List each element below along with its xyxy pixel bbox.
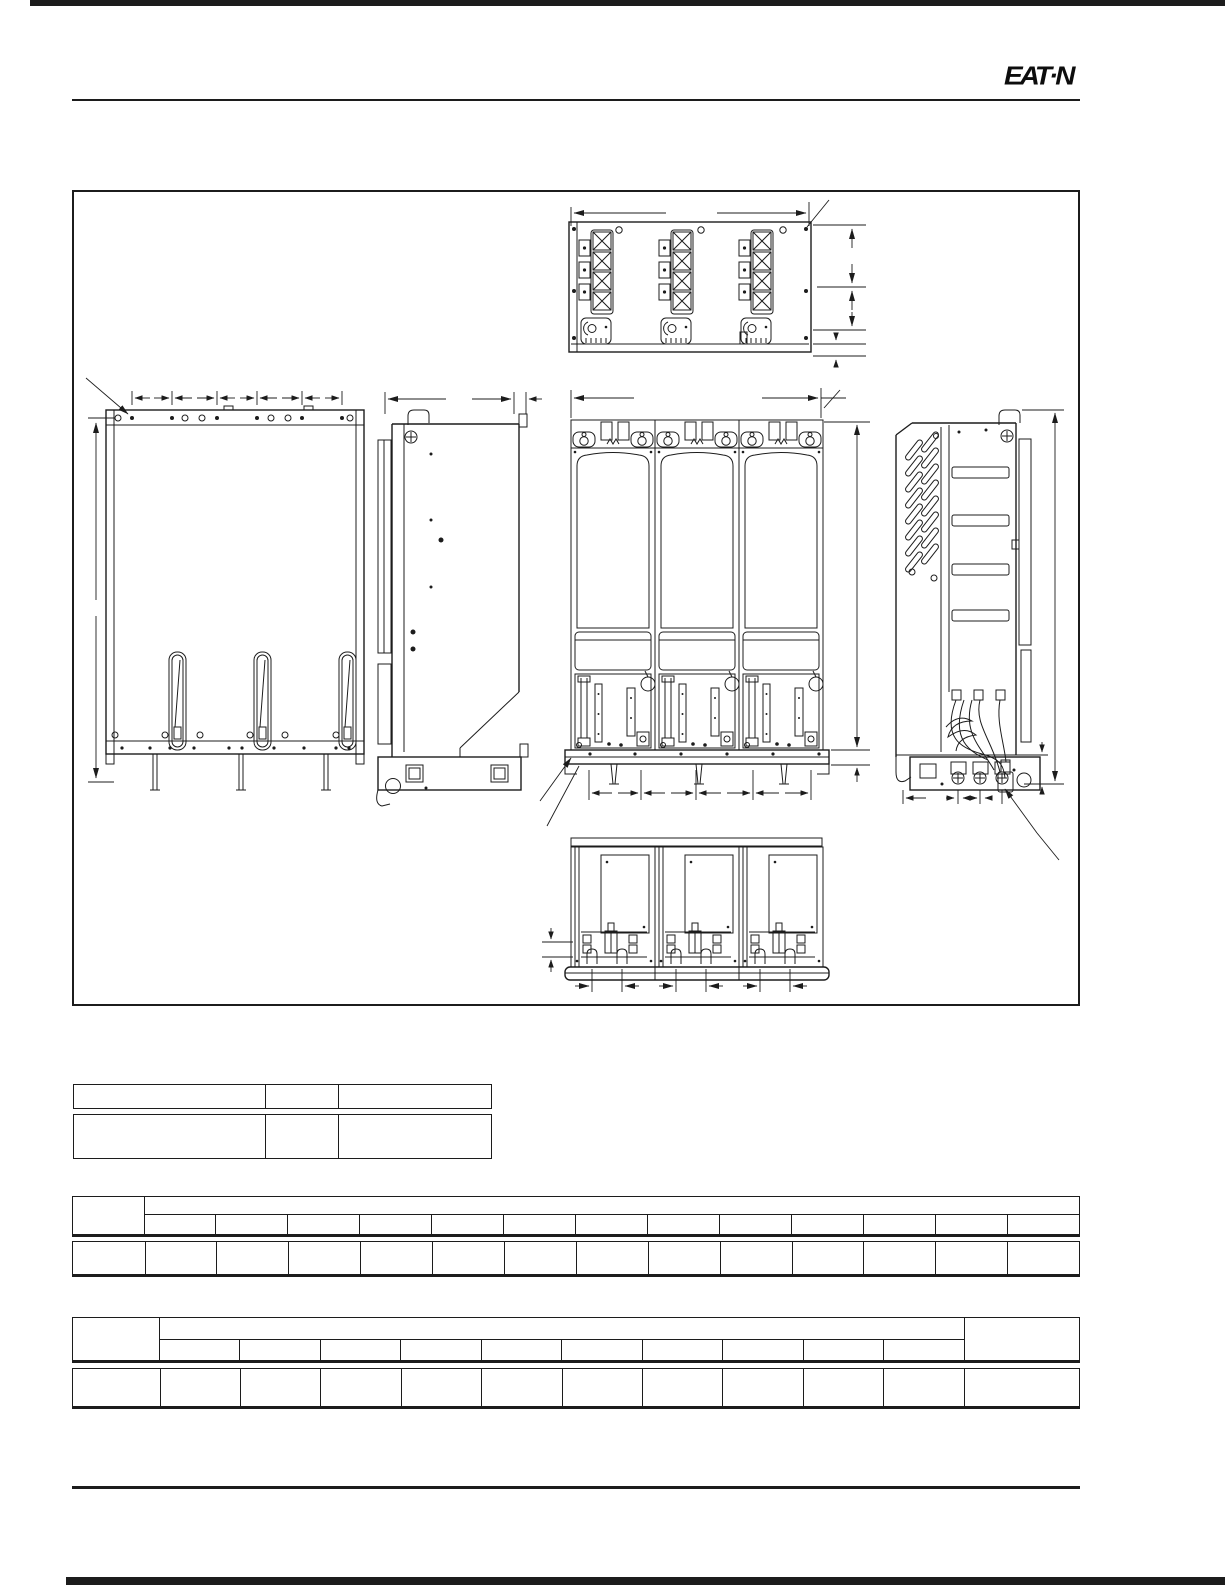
panel-legs — [150, 754, 331, 790]
table-cell — [720, 1242, 792, 1274]
terminal-base — [896, 755, 1040, 790]
width-dimension — [571, 388, 846, 418]
module-legs — [609, 764, 789, 784]
table-corner-cell — [73, 1318, 160, 1360]
table-cell — [935, 1215, 1007, 1234]
height-dimension — [88, 418, 114, 782]
table-cell — [481, 1369, 561, 1406]
summary-table-row-2 — [73, 1114, 492, 1159]
table-last-col-header-cell — [964, 1318, 1080, 1360]
side-slots — [952, 467, 1009, 621]
top-view-dimensions — [571, 200, 866, 367]
leader-line — [540, 758, 571, 801]
table-cell — [803, 1340, 884, 1360]
table-cell — [359, 1215, 431, 1234]
height-dimension — [1018, 410, 1064, 794]
height-dimension — [824, 422, 870, 782]
table-cell — [1007, 1215, 1079, 1234]
table-group-header-cell — [160, 1318, 964, 1340]
table-cell — [719, 1215, 791, 1234]
summary-table-row-1 — [73, 1084, 492, 1109]
wide-table-1-body-row — [73, 1242, 1079, 1274]
mounting-bracket-strip — [571, 420, 823, 448]
mounting-holes — [115, 415, 353, 421]
table-cell — [863, 1242, 935, 1274]
table-cell — [240, 1369, 320, 1406]
table-cell — [722, 1369, 802, 1406]
dimension-drawing-panel — [72, 190, 1080, 1006]
table-cell — [338, 1085, 491, 1108]
top-view-terminal-blocks — [579, 230, 773, 344]
table-cell — [239, 1340, 320, 1360]
table-cell — [265, 1115, 338, 1158]
wide-table-1-body — [72, 1241, 1080, 1277]
dimension-drawing — [74, 192, 1078, 1004]
table-cell — [1007, 1242, 1079, 1274]
table-cell — [648, 1242, 720, 1274]
wide-table-2-body-row — [73, 1369, 1079, 1406]
table-cell — [722, 1340, 803, 1360]
table-cell — [215, 1215, 287, 1234]
table-cell — [160, 1369, 240, 1406]
table-cell — [575, 1215, 647, 1234]
louver-vents — [904, 431, 939, 581]
table-cell — [791, 1215, 863, 1234]
wide-table-2-header — [72, 1317, 1080, 1363]
table-corner-cell — [73, 1197, 145, 1234]
hanging-hook — [408, 410, 429, 425]
table-cell — [288, 1242, 360, 1274]
table-cell — [792, 1242, 864, 1274]
document-page: { "page": { "background_color": "#ffffff… — [0, 0, 1225, 1585]
wide-table-2-body — [72, 1368, 1080, 1409]
terminal-pitch-dimensions — [903, 789, 1059, 860]
table-cell — [561, 1340, 642, 1360]
table-cell — [160, 1340, 240, 1360]
right-side-view — [896, 410, 1064, 860]
left-side-view — [377, 392, 542, 806]
table-cell — [320, 1340, 401, 1360]
header-rule — [72, 99, 1080, 101]
table-cell — [964, 1369, 1080, 1406]
table-cell — [338, 1115, 491, 1158]
table-cell — [481, 1340, 562, 1360]
table-cell — [642, 1369, 722, 1406]
base-assembly — [377, 757, 521, 806]
table-cell — [803, 1369, 883, 1406]
table-cell — [73, 1369, 160, 1406]
table-cell — [400, 1340, 481, 1360]
table-cell — [503, 1215, 575, 1234]
table-cell — [431, 1215, 503, 1234]
table-cell — [265, 1085, 338, 1108]
table-cell — [935, 1242, 1007, 1274]
bottom-modules — [571, 847, 823, 967]
table-cell — [145, 1215, 216, 1234]
table-cell — [883, 1369, 963, 1406]
table-cell — [647, 1215, 719, 1234]
drive-modules — [571, 448, 823, 750]
summary-row — [74, 1085, 491, 1108]
table-cell — [883, 1340, 964, 1360]
wide-table-1-header — [72, 1196, 1080, 1237]
module-pitch-dimensions — [589, 770, 811, 800]
table-cell — [360, 1242, 432, 1274]
table-cell — [576, 1242, 648, 1274]
page-top-edge-bar — [30, 0, 1225, 6]
summary-row — [74, 1115, 491, 1158]
table-cell — [320, 1369, 400, 1406]
table-cell — [401, 1369, 481, 1406]
table-cell — [74, 1085, 265, 1108]
bottom-view — [542, 838, 829, 992]
table-cell — [863, 1215, 935, 1234]
table-cell — [216, 1242, 288, 1274]
eaton-logo: EAT·N — [1004, 67, 1082, 89]
table-cell — [562, 1369, 642, 1406]
table-cell — [73, 1242, 145, 1274]
table-cell — [642, 1340, 723, 1360]
depth-dimensions — [385, 392, 542, 414]
table-cell — [432, 1242, 504, 1274]
back-panel-view — [86, 378, 364, 790]
table-cell — [74, 1115, 265, 1158]
wide-table-1-subheader-row — [145, 1215, 1080, 1234]
front-view — [540, 388, 870, 826]
wide-table-2-subheader-row — [160, 1340, 964, 1360]
footer-rule — [72, 1486, 1080, 1489]
table-cell — [504, 1242, 576, 1274]
table-cell — [145, 1242, 217, 1274]
top-view — [569, 200, 866, 367]
table-cell — [287, 1215, 359, 1234]
page-bottom-edge-bar — [66, 1577, 1225, 1585]
table-group-header-cell — [145, 1197, 1080, 1215]
